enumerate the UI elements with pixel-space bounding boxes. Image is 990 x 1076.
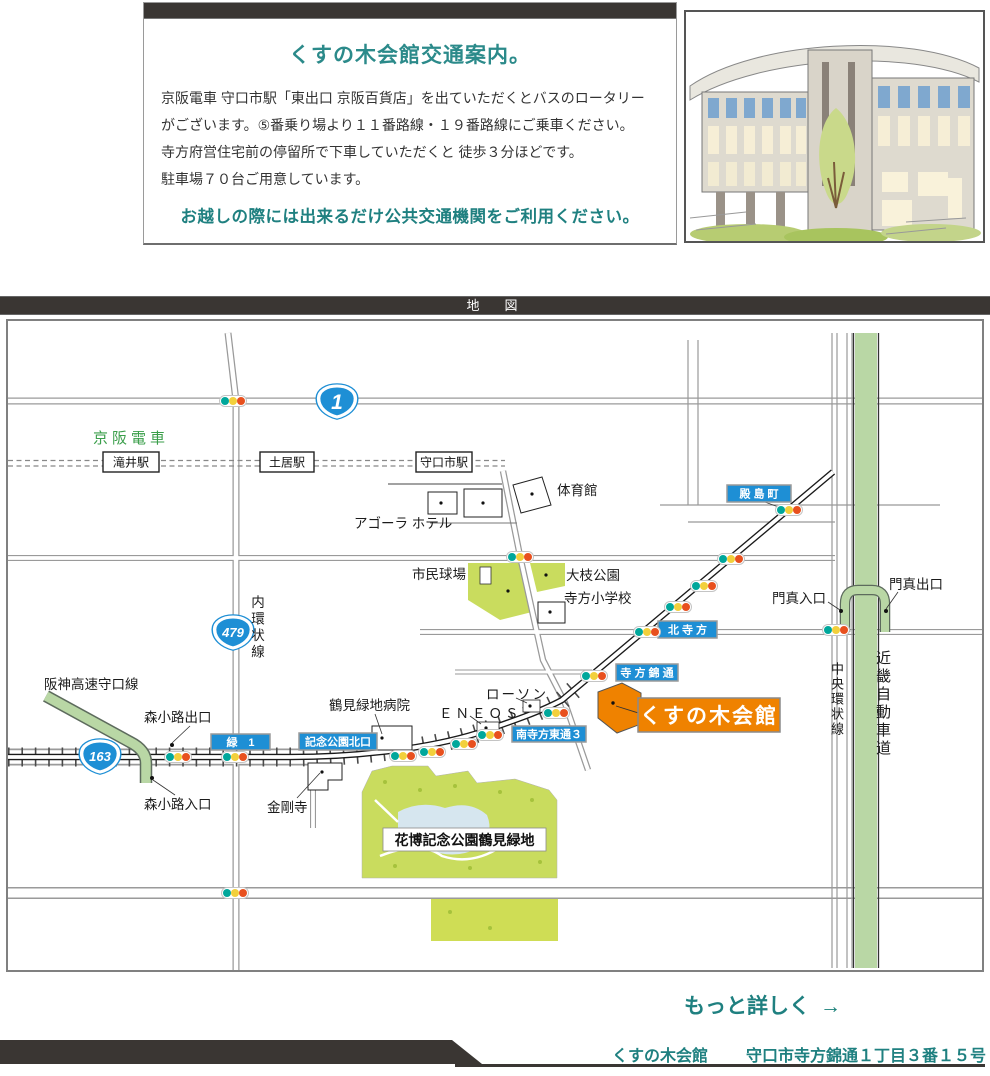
- arrow-right-icon: →: [820, 995, 841, 1018]
- footer-address: 守口市寺方錦通１丁目３番１５号: [746, 1048, 986, 1065]
- station-takii: 滝井駅: [113, 456, 149, 470]
- route-shield-1: 1: [319, 386, 356, 417]
- traffic-light-icon: [581, 671, 608, 682]
- header-bar: [144, 3, 676, 19]
- label-chuo-kanjo: 中央環状線: [827, 662, 846, 737]
- park-name-box: 花博記念公園鶴見緑地: [383, 828, 546, 851]
- traffic-light-icon: [220, 396, 247, 407]
- traffic-light-icon: [776, 505, 803, 516]
- label-lawson: ローソン: [486, 687, 548, 702]
- svg-text:163: 163: [89, 749, 111, 764]
- label-kinki-expressway: 近畿自動車道: [872, 650, 893, 758]
- traffic-light-icon: [477, 730, 504, 741]
- label-eneos: ＥＮＥＯＳ: [439, 706, 522, 721]
- sign-kinen-koen-kitaguchi: 記念公園北口: [299, 733, 377, 750]
- traffic-light-icon: [691, 581, 718, 592]
- svg-text:南寺方東通３: 南寺方東通３: [516, 727, 582, 741]
- sign-tonoshima: 殿 島 町: [727, 485, 791, 502]
- label-keihan-railway: 京阪電車: [93, 430, 169, 447]
- map-canvas: くすの木会館 滝井駅 土居駅 守口市駅 京阪電車 殿 島 町: [8, 321, 982, 970]
- more-details-label[interactable]: もっと詳しく: [684, 995, 810, 1018]
- transit-info-panel: くすの木会館交通案内。 京阪電車 守口市駅「東出口 京阪百貨店」を出ていただくと…: [143, 2, 677, 245]
- traffic-light-icon: [665, 602, 692, 613]
- station-moriguchi: 守口市駅: [420, 455, 468, 470]
- svg-text:北 寺 方: 北 寺 方: [668, 623, 707, 637]
- label-terakata-elementary: 寺方小学校: [564, 590, 632, 606]
- label-kadoma-entrance: 門真入口: [772, 591, 826, 606]
- traffic-light-icon: [543, 708, 570, 719]
- transit-line-2: がございます。⑤番乗り場より１１番路線・１９番路線にご乗車ください。: [161, 112, 666, 139]
- traffic-light-icon: [507, 552, 534, 563]
- venue-banner-label: くすの木会館: [640, 704, 778, 728]
- sign-midori1: 緑 1: [211, 734, 270, 750]
- footer-bar: [0, 1040, 482, 1064]
- traffic-light-icon: [165, 752, 192, 763]
- route-shield-163: 163: [82, 741, 119, 772]
- label-agora-hotel: アゴーラ ホテル: [354, 515, 452, 531]
- traffic-light-icon: [419, 747, 446, 758]
- more-details-link[interactable]: もっと詳しく→: [684, 990, 841, 1020]
- label-morishoji-exit: 森小路出口: [144, 710, 212, 725]
- traffic-light-icon: [634, 627, 661, 638]
- page-title: くすの木会館交通案内。: [144, 39, 676, 69]
- sign-terakata-nishiki: 寺 方 錦 通: [616, 664, 678, 681]
- label-gym: 体育館: [557, 483, 598, 498]
- label-ballpark: 市民球場: [412, 566, 466, 582]
- svg-text:1: 1: [331, 391, 343, 414]
- label-kahaku-park: 花博記念公園鶴見緑地: [395, 832, 535, 848]
- svg-text:記念公園北口: 記念公園北口: [305, 735, 371, 749]
- traffic-light-icon: [390, 751, 417, 762]
- public-transport-note: お越しの際には出来るだけ公共交通機関をご利用ください。: [144, 203, 676, 227]
- traffic-light-icon: [451, 739, 478, 750]
- sign-kita-terakata: 北 寺 方: [658, 621, 717, 638]
- page: くすの木会館交通案内。 京阪電車 守口市駅「東出口 京阪百貨店」を出ていただくと…: [0, 0, 990, 1076]
- svg-text:479: 479: [221, 625, 244, 640]
- transit-line-3: 寺方府営住宅前の停留所で下車していただくと 徒歩３分ほどです。: [161, 139, 666, 166]
- transit-line-1: 京阪電車 守口市駅「東出口 京阪百貨店」を出ていただくとバスのロータリー: [161, 85, 666, 112]
- footer-info: くすの木会館守口市寺方錦通１丁目３番１５号: [612, 1042, 986, 1066]
- label-uchi-kanjo: 内環状線: [246, 595, 266, 661]
- stations: 滝井駅 土居駅 守口市駅: [103, 452, 472, 472]
- station-doi: 土居駅: [269, 456, 305, 470]
- traffic-light-icon: [222, 888, 249, 899]
- label-kongoji: 金剛寺: [267, 800, 308, 815]
- map-section-label: 地 図: [466, 298, 523, 313]
- svg-text:緑 1: 緑 1: [226, 735, 254, 749]
- label-morishoji-entrance: 森小路入口: [144, 797, 212, 812]
- label-hanshin-expressway: 阪神高速守口線: [44, 676, 139, 692]
- map-section-bar: 地 図: [0, 296, 990, 315]
- transit-line-4: 駐車場７０台ご用意しています。: [161, 166, 666, 193]
- traffic-light-icon: [718, 554, 745, 565]
- venue-banner: くすの木会館: [638, 698, 780, 732]
- traffic-light-icon: [823, 625, 850, 636]
- label-kadoma-exit: 門真出口: [889, 577, 943, 592]
- footer-venue-name: くすの木会館: [612, 1048, 708, 1065]
- map: くすの木会館 滝井駅 土居駅 守口市駅 京阪電車 殿 島 町: [6, 319, 984, 972]
- svg-text:寺 方 錦 通: 寺 方 錦 通: [620, 666, 673, 680]
- label-tsurumi-hospital: 鶴見緑地病院: [329, 697, 410, 713]
- svg-text:殿 島 町: 殿 島 町: [738, 487, 778, 501]
- building-illustration-art: [686, 12, 983, 241]
- building-illustration: [684, 10, 985, 243]
- transit-description: 京阪電車 守口市駅「東出口 京阪百貨店」を出ていただくとバスのロータリー がござ…: [161, 85, 666, 193]
- sign-minami-terakata: 南寺方東通３: [512, 726, 586, 742]
- label-oeda-park: 大枝公園: [566, 568, 620, 583]
- traffic-light-icon: [222, 752, 249, 763]
